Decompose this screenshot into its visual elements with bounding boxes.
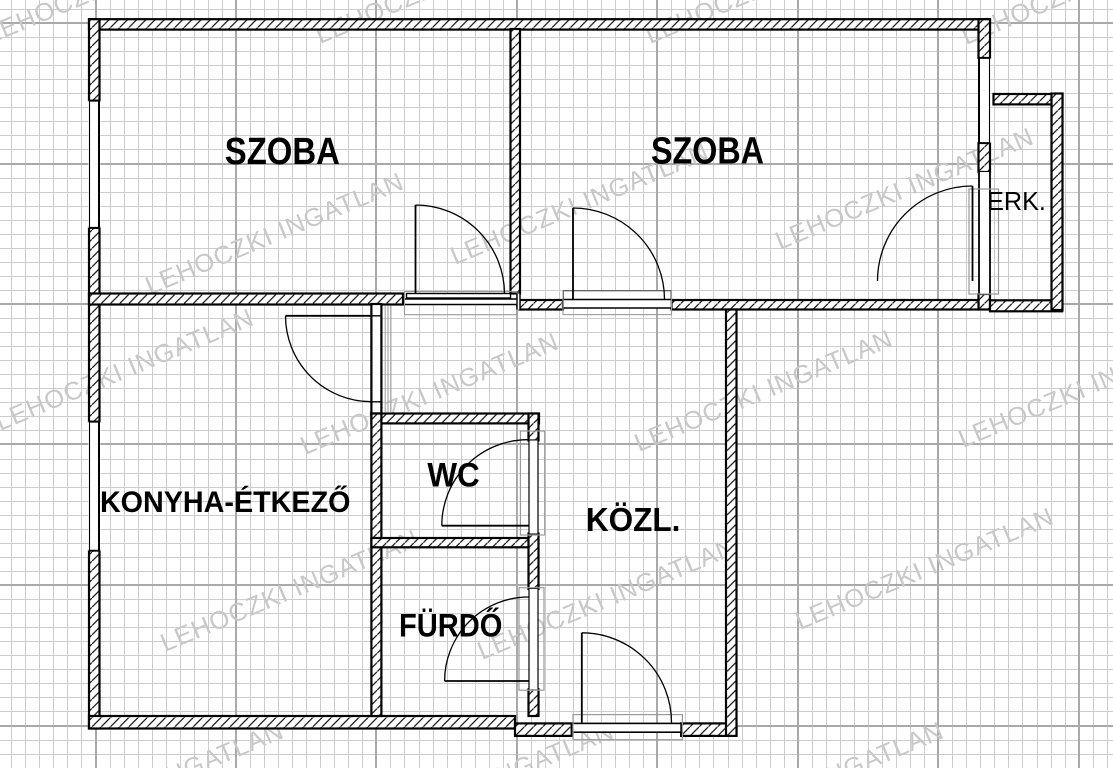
svg-text:SZOBA: SZOBA [651,130,764,172]
svg-text:SZOBA: SZOBA [225,130,340,173]
svg-text:ERK.: ERK. [987,188,1046,216]
svg-text:WC: WC [427,455,479,493]
svg-text:KONYHA-ÉTKEZŐ: KONYHA-ÉTKEZŐ [100,484,351,519]
svg-text:FÜRDŐ: FÜRDŐ [399,606,502,644]
svg-text:KÖZL.: KÖZL. [586,501,680,538]
